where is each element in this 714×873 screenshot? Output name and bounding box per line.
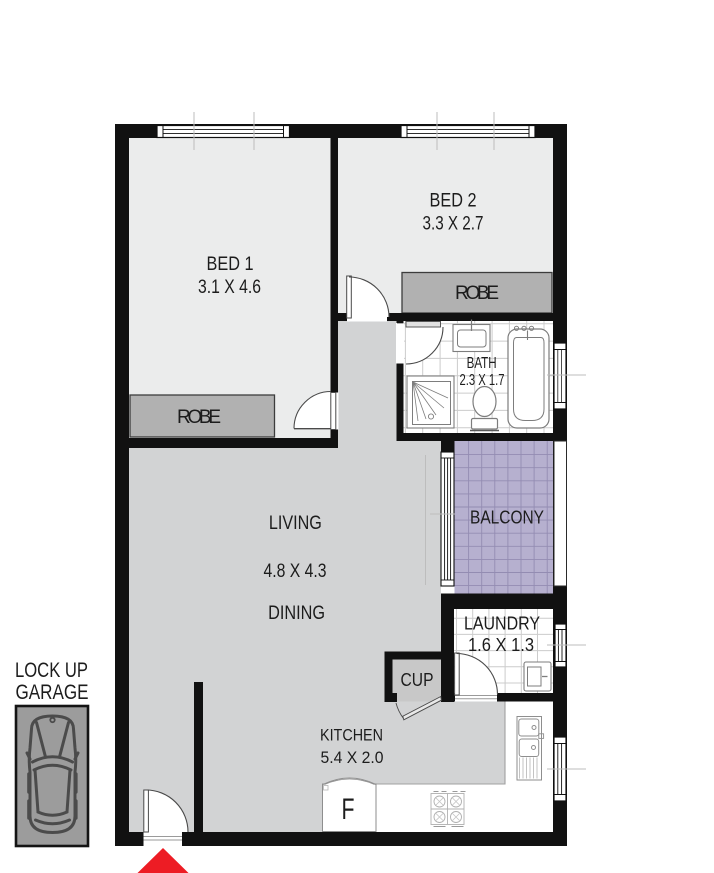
svg-text:BED 2: BED 2	[430, 191, 477, 212]
svg-text:LOCK UP: LOCK UP	[15, 658, 88, 682]
svg-text:CUP: CUP	[401, 670, 434, 690]
svg-text:3.1 X 4.6: 3.1 X 4.6	[198, 277, 261, 298]
svg-text:BALCONY: BALCONY	[470, 507, 544, 528]
svg-text:3.3 X 2.7: 3.3 X 2.7	[423, 214, 484, 235]
svg-text:BATH: BATH	[467, 355, 497, 372]
svg-text:KITCHEN: KITCHEN	[320, 726, 383, 745]
svg-text:4.8 X 4.3: 4.8 X 4.3	[264, 561, 327, 582]
svg-text:ROBE: ROBE	[455, 283, 499, 304]
svg-text:5.4 X 2.0: 5.4 X 2.0	[321, 748, 384, 767]
svg-text:DINING: DINING	[268, 603, 325, 624]
svg-text:LAUNDRY: LAUNDRY	[464, 614, 540, 634]
svg-text:1.6 X 1.3: 1.6 X 1.3	[468, 635, 534, 655]
svg-text:BED 1: BED 1	[207, 254, 254, 275]
svg-text:F: F	[342, 793, 355, 826]
svg-text:LIVING: LIVING	[269, 513, 322, 534]
svg-text:ROBE: ROBE	[177, 407, 221, 428]
svg-text:GARAGE: GARAGE	[16, 680, 89, 704]
svg-text:2.3 X 1.7: 2.3 X 1.7	[460, 372, 505, 389]
